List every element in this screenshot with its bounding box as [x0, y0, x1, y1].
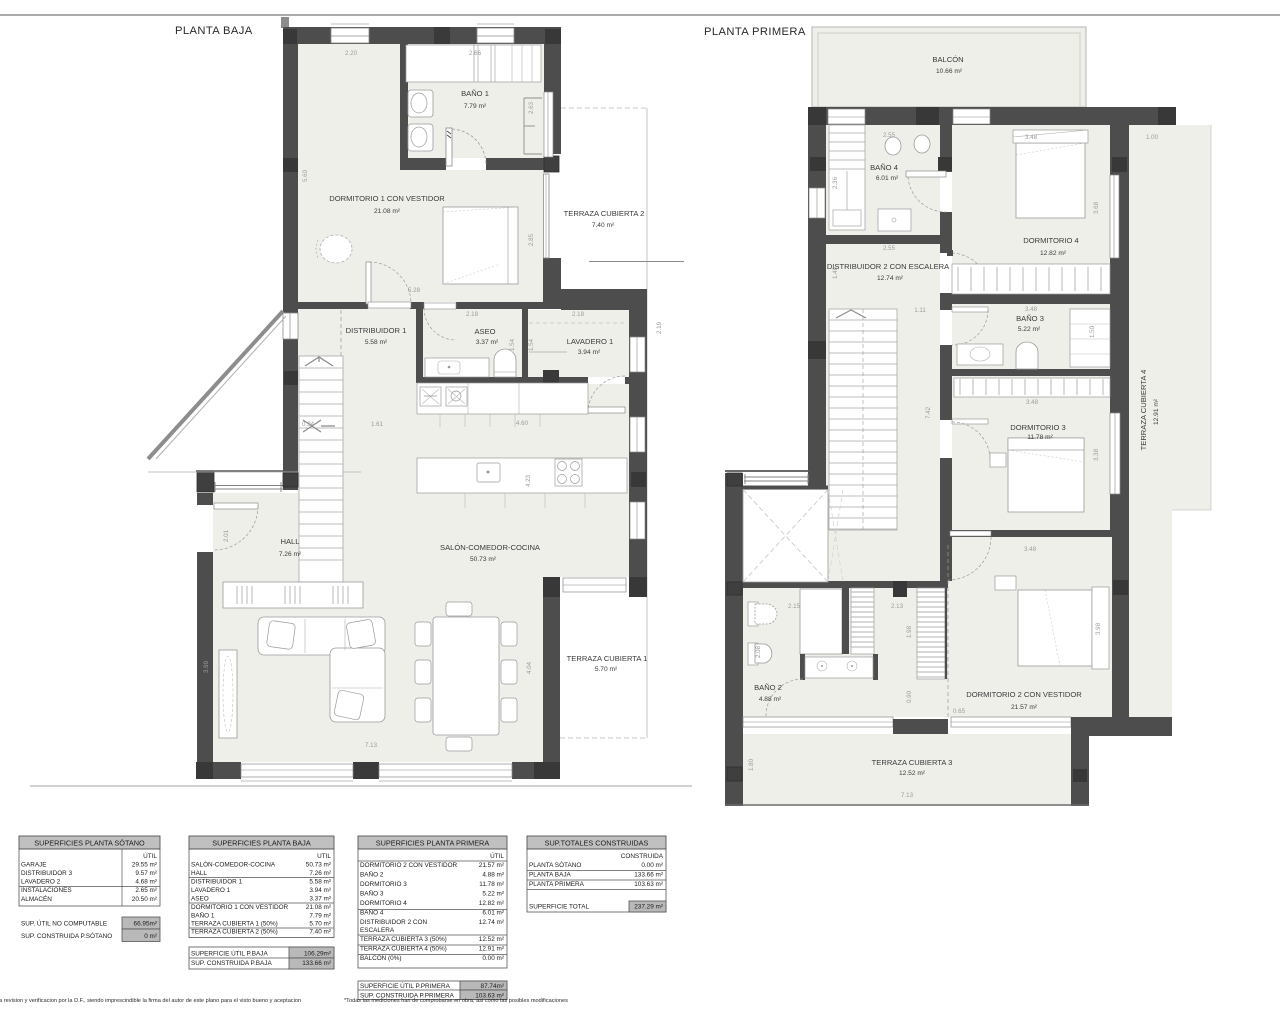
svg-text:106.29m²: 106.29m²	[304, 951, 331, 958]
svg-text:SUP. ÚTIL NO COMPUTABLE: SUP. ÚTIL NO COMPUTABLE	[21, 919, 107, 928]
svg-text:2.13: 2.13	[891, 603, 904, 610]
svg-text:SUP. CONSTRUIDA P.BAJA: SUP. CONSTRUIDA P.BAJA	[191, 960, 272, 967]
svg-text:TERRAZA CUBIERTA 2 (50%): TERRAZA CUBIERTA 2 (50%)	[191, 929, 278, 936]
svg-text:DISTRIBUIDOR 1: DISTRIBUIDOR 1	[346, 326, 407, 335]
svg-text:87.74m²: 87.74m²	[481, 983, 504, 990]
svg-text:7.26 m²: 7.26 m²	[309, 870, 331, 877]
svg-text:TERRAZA CUBIERTA 3 (50%): TERRAZA CUBIERTA 3 (50%)	[360, 936, 447, 943]
svg-text:2.55: 2.55	[883, 245, 896, 252]
svg-text:BAÑO 2: BAÑO 2	[360, 870, 384, 879]
svg-text:BAÑO 1: BAÑO 1	[191, 911, 215, 920]
svg-text:SUPERFICIES PLANTA BAJA: SUPERFICIES PLANTA BAJA	[212, 839, 311, 848]
svg-text:DORMITORIO 3: DORMITORIO 3	[1010, 423, 1066, 432]
svg-text:DORMITORIO 4: DORMITORIO 4	[360, 900, 407, 907]
svg-text:UTIL: UTIL	[317, 853, 331, 860]
svg-text:ASEO: ASEO	[474, 327, 495, 336]
svg-text:HALL: HALL	[281, 537, 300, 546]
svg-text:5.60: 5.60	[302, 169, 309, 182]
svg-text:TERRAZA CUBIERTA 2: TERRAZA CUBIERTA 2	[564, 209, 645, 218]
svg-text:PLANTA PRIMERA: PLANTA PRIMERA	[529, 881, 585, 888]
svg-text:133.66 m²: 133.66 m²	[302, 960, 331, 967]
svg-text:12.91 m²: 12.91 m²	[1153, 398, 1160, 425]
svg-text:7.42: 7.42	[925, 406, 932, 419]
svg-text:BAÑO 3: BAÑO 3	[360, 889, 384, 898]
svg-text:21.08 m²: 21.08 m²	[306, 904, 331, 911]
svg-text:2.18: 2.18	[466, 311, 479, 318]
svg-text:*Todas las mediciones han de c: *Todas las mediciones han de comprobarse…	[344, 998, 568, 1004]
svg-text:ALMACÉN: ALMACÉN	[21, 894, 52, 903]
svg-text:3.48: 3.48	[1026, 399, 1039, 406]
svg-text:DORMITORIO 4: DORMITORIO 4	[1023, 236, 1079, 245]
svg-text:3.98: 3.98	[1095, 622, 1102, 635]
svg-text:6.01 m²: 6.01 m²	[876, 175, 899, 182]
svg-text:ÚTIL: ÚTIL	[143, 851, 157, 860]
svg-text:BAÑO 3: BAÑO 3	[1016, 314, 1044, 323]
svg-text:9.57 m²: 9.57 m²	[135, 870, 157, 877]
svg-text:10.66 m²: 10.66 m²	[936, 68, 963, 75]
svg-text:3.99: 3.99	[203, 660, 210, 673]
svg-text:7.40 m²: 7.40 m²	[309, 929, 331, 936]
svg-text:12.52 m²: 12.52 m²	[479, 936, 504, 943]
svg-text:12.74 m²: 12.74 m²	[877, 275, 904, 282]
svg-text:SUPERFICIE ÚTIL P.PRIMERA: SUPERFICIE ÚTIL P.PRIMERA	[360, 981, 451, 990]
svg-text:133.66 m²: 133.66 m²	[634, 872, 663, 879]
svg-text:2.19: 2.19	[656, 321, 663, 334]
svg-text:PLANTA BAJA: PLANTA BAJA	[529, 872, 572, 879]
svg-text:7.79 m²: 7.79 m²	[464, 103, 487, 110]
svg-text:5.28: 5.28	[408, 287, 421, 294]
svg-text:1.80: 1.80	[748, 758, 755, 771]
svg-text:3.68: 3.68	[1093, 201, 1100, 214]
svg-text:BAÑO 2: BAÑO 2	[754, 683, 782, 692]
svg-text:SUPERFICIE ÚTIL P.BAJA: SUPERFICIE ÚTIL P.BAJA	[191, 949, 268, 958]
svg-text:29.55 m²: 29.55 m²	[132, 862, 157, 869]
svg-text:3.48: 3.48	[1024, 546, 1037, 553]
svg-text:103.63 m²: 103.63 m²	[634, 881, 663, 888]
svg-text:PLANTA BAJA: PLANTA BAJA	[175, 25, 253, 37]
svg-text:3.38: 3.38	[1093, 448, 1100, 461]
svg-text:3.37 m²: 3.37 m²	[309, 896, 331, 903]
svg-text:5.70 m²: 5.70 m²	[309, 921, 331, 928]
svg-text:2.20: 2.20	[345, 50, 358, 57]
svg-text:12.82 m²: 12.82 m²	[479, 900, 504, 907]
svg-text:DORMITORIO 3: DORMITORIO 3	[360, 881, 407, 888]
svg-text:2.01: 2.01	[223, 529, 230, 542]
svg-text:1.54: 1.54	[528, 338, 535, 351]
svg-text:GARAJE: GARAJE	[21, 862, 47, 869]
svg-text:4.04: 4.04	[526, 661, 533, 674]
svg-text:4.68 m²: 4.68 m²	[135, 879, 157, 886]
svg-text:LAVADERO 2: LAVADERO 2	[21, 879, 61, 886]
svg-text:0 m²: 0 m²	[144, 933, 157, 940]
svg-text:2.36: 2.36	[832, 176, 839, 189]
svg-text:INSTALACIONES: INSTALACIONES	[21, 887, 72, 894]
svg-text:7.26 m²: 7.26 m²	[279, 551, 302, 558]
svg-text:DORMITORIO 1 CON VESTIDOR: DORMITORIO 1 CON VESTIDOR	[191, 904, 289, 911]
svg-text:21.08 m²: 21.08 m²	[374, 208, 401, 215]
svg-text:TERRAZA CUBIERTA 1: TERRAZA CUBIERTA 1	[567, 654, 648, 663]
svg-text:50.73 m²: 50.73 m²	[306, 862, 331, 869]
svg-text:0.94: 0.94	[302, 421, 315, 428]
svg-text:21.57 m²: 21.57 m²	[479, 862, 504, 869]
svg-text:4.88 m²: 4.88 m²	[759, 696, 782, 703]
svg-text:5.22 m²: 5.22 m²	[482, 891, 504, 898]
svg-text:SALÓN-COMEDOR-COCINA: SALÓN-COMEDOR-COCINA	[440, 543, 541, 552]
svg-text:5.70 m²: 5.70 m²	[595, 666, 618, 673]
svg-text:SUPERFICIES PLANTA PRIMERA: SUPERFICIES PLANTA PRIMERA	[376, 839, 490, 848]
svg-text:HALL: HALL	[191, 870, 207, 877]
svg-text:0.90: 0.90	[906, 690, 913, 703]
svg-text:3.94 m²: 3.94 m²	[578, 349, 601, 356]
svg-text:SUP.TOTALES CONSTRUIDAS: SUP.TOTALES CONSTRUIDAS	[545, 839, 649, 848]
svg-text:BAÑO 4: BAÑO 4	[870, 163, 898, 172]
svg-text:4.88 m²: 4.88 m²	[482, 872, 504, 879]
svg-text:BALCÓN: BALCÓN	[932, 55, 963, 64]
svg-text:BAÑO 1: BAÑO 1	[461, 89, 489, 98]
svg-text:3.48: 3.48	[1025, 134, 1038, 141]
svg-text:1.11: 1.11	[914, 307, 926, 314]
svg-text:CONSTRUIDA: CONSTRUIDA	[621, 853, 664, 860]
svg-text:0.00 m²: 0.00 m²	[482, 955, 504, 962]
svg-text:7.40 m²: 7.40 m²	[592, 222, 615, 229]
svg-text:7.13: 7.13	[365, 742, 378, 749]
svg-text:1.54: 1.54	[509, 338, 516, 351]
svg-text:2.18: 2.18	[572, 311, 585, 318]
svg-text:66.95m²: 66.95m²	[134, 921, 157, 928]
svg-text:1.48: 1.48	[832, 266, 839, 279]
svg-text:2.85: 2.85	[528, 233, 535, 246]
svg-text:2.55: 2.55	[883, 132, 896, 139]
svg-text:DISTRIBUIDOR 1: DISTRIBUIDOR 1	[191, 879, 243, 886]
svg-text:DORMITORIO 2 CON VESTIDOR: DORMITORIO 2 CON VESTIDOR	[360, 862, 458, 869]
svg-text:11.78 m²: 11.78 m²	[1027, 434, 1053, 441]
svg-text:4.23: 4.23	[525, 474, 532, 487]
svg-text:DISTRIBUIDOR 2 CON: DISTRIBUIDOR 2 CON	[360, 919, 427, 926]
svg-text:TERRAZA CUBIERTA 1 (50%): TERRAZA CUBIERTA 1 (50%)	[191, 921, 278, 928]
svg-text:SALÓN-COMEDOR-COCINA: SALÓN-COMEDOR-COCINA	[191, 860, 276, 869]
svg-text:12.82 m²: 12.82 m²	[1040, 250, 1067, 257]
svg-text:2.63: 2.63	[528, 101, 535, 114]
svg-text:11.78 m²: 11.78 m²	[479, 881, 504, 888]
svg-text:TERRAZA CUBIERTA 4: TERRAZA CUBIERTA 4	[1139, 370, 1148, 451]
svg-text:2.15: 2.15	[788, 603, 801, 610]
svg-text:7.13: 7.13	[901, 792, 914, 799]
svg-text:5.22 m²: 5.22 m²	[1018, 326, 1041, 333]
svg-text:5.58 m²: 5.58 m²	[365, 339, 388, 346]
svg-text:3.48: 3.48	[1025, 306, 1038, 313]
svg-text:3.94 m²: 3.94 m²	[309, 887, 331, 894]
svg-text:ÚTIL: ÚTIL	[490, 851, 504, 860]
svg-text:6.01 m²: 6.01 m²	[482, 910, 504, 917]
svg-text:2.65 m²: 2.65 m²	[135, 887, 157, 894]
svg-text:4.60: 4.60	[516, 420, 529, 427]
svg-text:237.29 m²: 237.29 m²	[634, 904, 663, 911]
svg-text:LAVADERO 1: LAVADERO 1	[567, 337, 614, 346]
svg-text:12.91 m²: 12.91 m²	[479, 946, 504, 953]
svg-text:2.66: 2.66	[469, 50, 482, 57]
svg-text:DORMITORIO 1 CON VESTIDOR: DORMITORIO 1 CON VESTIDOR	[329, 194, 445, 203]
svg-text:DORMITORIO 2 CON VESTIDOR: DORMITORIO 2 CON VESTIDOR	[966, 690, 1082, 699]
svg-text:PLANTA SÓTANO: PLANTA SÓTANO	[529, 860, 581, 869]
svg-text:1.50: 1.50	[1089, 325, 1096, 338]
svg-text:0.65: 0.65	[953, 708, 966, 715]
svg-text:LAVADERO 1: LAVADERO 1	[191, 887, 231, 894]
svg-text:1.61: 1.61	[371, 421, 384, 428]
svg-text:5.58 m²: 5.58 m²	[309, 879, 331, 886]
svg-text:21.57 m²: 21.57 m²	[1011, 704, 1038, 711]
svg-text:SUP. CONSTRUIDA P.SÓTANO: SUP. CONSTRUIDA P.SÓTANO	[21, 931, 112, 940]
svg-text:BAÑO 4: BAÑO 4	[360, 908, 384, 917]
svg-text:PLANTA PRIMERA: PLANTA PRIMERA	[704, 26, 806, 38]
svg-text:20.50 m²: 20.50 m²	[132, 896, 157, 903]
svg-text:SUPERFICIE TOTAL: SUPERFICIE TOTAL	[529, 904, 589, 911]
svg-text:DISTRIBUIDOR 3: DISTRIBUIDOR 3	[21, 870, 73, 877]
svg-text:TERRAZA CUBIERTA 4 (50%): TERRAZA CUBIERTA 4 (50%)	[360, 946, 447, 953]
svg-text:DISTRIBUIDOR 2 CON ESCALERA: DISTRIBUIDOR 2 CON ESCALERA	[827, 262, 950, 271]
svg-text:ESCALERA: ESCALERA	[360, 927, 395, 934]
svg-text:12.52 m²: 12.52 m²	[899, 770, 926, 777]
svg-text:7.79 m²: 7.79 m²	[309, 913, 331, 920]
svg-text:evia revision y verificacion p: evia revision y verificacion por la D.F.…	[0, 998, 301, 1004]
svg-text:50.73 m²: 50.73 m²	[470, 556, 497, 563]
svg-text:3.37 m²: 3.37 m²	[476, 339, 499, 346]
svg-text:SUPERFICIES PLANTA SÓTANO: SUPERFICIES PLANTA SÓTANO	[34, 839, 145, 848]
svg-text:2.08: 2.08	[755, 645, 762, 658]
svg-text:TERRAZA CUBIERTA 3: TERRAZA CUBIERTA 3	[872, 758, 953, 767]
svg-text:ASEO: ASEO	[191, 896, 209, 903]
svg-text:0.00 m²: 0.00 m²	[641, 862, 663, 869]
svg-text:1.00: 1.00	[1146, 134, 1159, 141]
svg-text:12.74 m²: 12.74 m²	[479, 919, 504, 926]
svg-text:1.98: 1.98	[906, 625, 913, 638]
